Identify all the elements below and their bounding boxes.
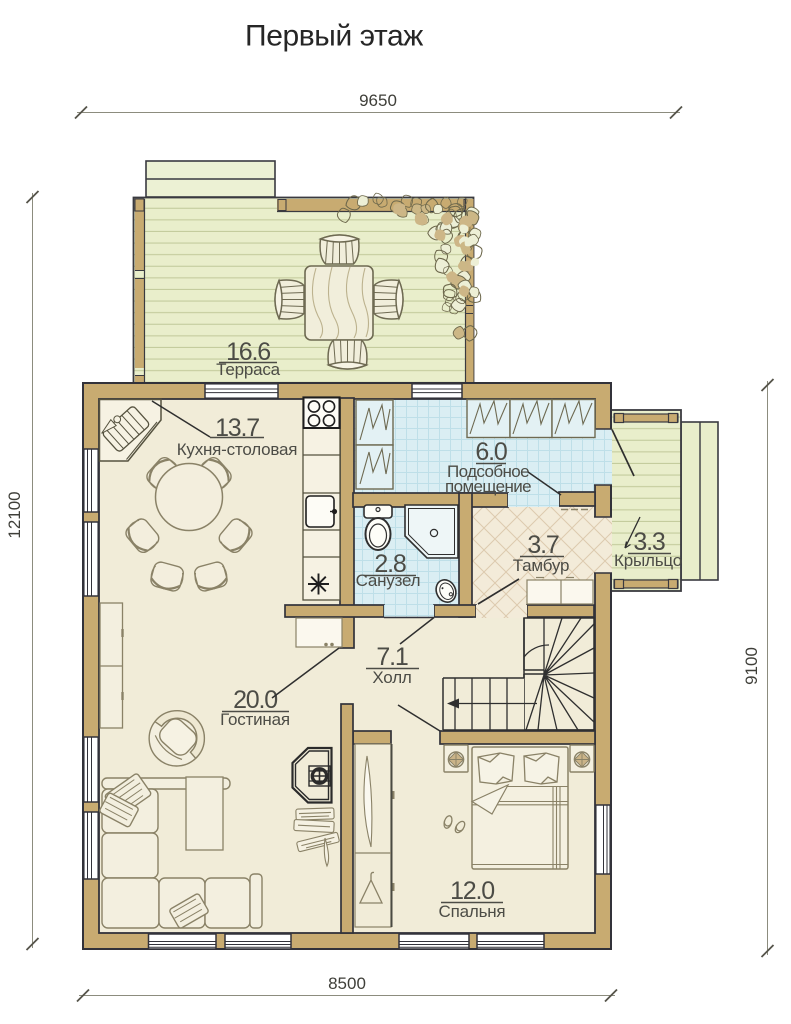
- svg-text:7.1: 7.1: [376, 643, 407, 671]
- svg-text:Спальня: Спальня: [439, 902, 506, 921]
- svg-text:помещение: помещение: [445, 477, 531, 496]
- svg-text:9100: 9100: [742, 647, 761, 685]
- svg-text:Санузел: Санузел: [356, 571, 421, 590]
- svg-text:3.7: 3.7: [527, 531, 558, 559]
- svg-text:12.0: 12.0: [450, 877, 494, 905]
- svg-text:8500: 8500: [328, 974, 366, 993]
- svg-text:Кухня-столовая: Кухня-столовая: [177, 440, 298, 459]
- svg-text:Первый этаж: Первый этаж: [245, 20, 423, 53]
- svg-text:Гостиная: Гостиная: [220, 710, 290, 729]
- svg-text:9650: 9650: [359, 91, 397, 110]
- svg-text:Тамбур: Тамбур: [513, 556, 570, 575]
- svg-text:12100: 12100: [5, 491, 24, 538]
- svg-text:Холл: Холл: [372, 668, 411, 687]
